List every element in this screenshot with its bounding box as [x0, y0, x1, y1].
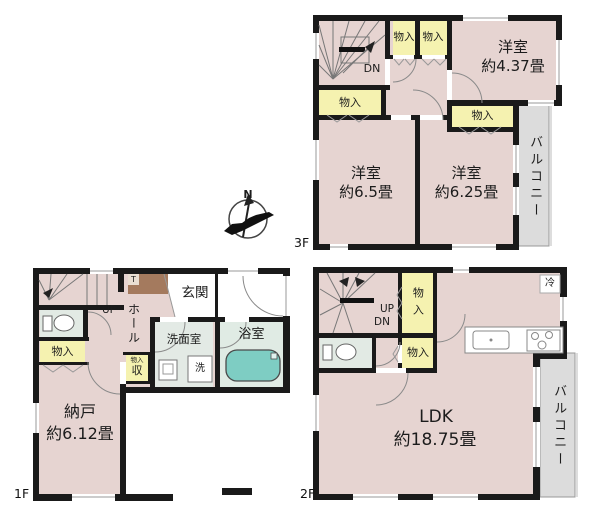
floor-1f-drawing	[33, 268, 290, 501]
entrance-label: 玄関	[171, 284, 219, 302]
balcony-label-2f: バルコニー	[544, 361, 572, 491]
closet-left-label: 物入	[319, 94, 381, 112]
north-compass-icon: N	[222, 190, 276, 246]
bathroom-label: 浴室	[223, 327, 280, 343]
bedroom-right-label: 洋室 約6.25畳	[418, 159, 515, 207]
stairs-down-label-3f: DN	[357, 61, 387, 77]
bedroom-right-name: 洋室	[451, 164, 481, 183]
closet-inner-label: 物入	[452, 107, 513, 125]
floor-2f-drawing	[313, 267, 578, 500]
bedroom-left-name: 洋室	[351, 164, 381, 183]
bedroom-left-size: 約6.5畳	[339, 183, 393, 202]
storage-tag-label: 物入	[126, 356, 148, 364]
site-wall-stub	[222, 488, 252, 495]
washer-label: 洗	[188, 362, 212, 376]
bedroom-small-name: 洋室	[498, 38, 528, 57]
floor-plan-1f: UP T 玄関 ホール 物入 洗面室 浴室 洗 物入 収 納戸 約6.12畳	[33, 268, 290, 501]
storeroom-name: 納戸	[42, 402, 118, 422]
stairs-down-label-2f: DN	[368, 316, 396, 329]
floor-tag-3f: 3F	[294, 235, 309, 250]
closet-upper-label-2f: 物入	[404, 279, 431, 329]
compass-north-label: N	[240, 188, 256, 202]
closet-lower-label-2f: 物入	[400, 345, 436, 361]
bedroom-right-size: 約6.25畳	[435, 183, 498, 202]
bedroom-small-size: 約4.37畳	[481, 57, 544, 76]
bedroom-small-label: 洋室 約4.37畳	[463, 33, 563, 81]
floor-tag-1f: 1F	[14, 486, 29, 501]
floor-plan-canvas: DN 物入 物入 物入 物入 洋室 約4.37畳 洋室 約6.5畳 洋室 約6.…	[0, 0, 600, 522]
ldk-name: LDK	[396, 407, 476, 429]
balcony-label-3f: バルコニー	[520, 111, 548, 243]
bedroom-left-label: 洋室 約6.5畳	[317, 159, 415, 207]
floor-plan-2f: UP DN 物入 物入 冷 LDK 約18.75畳 バルコニー	[313, 267, 578, 500]
stairs-up-label-2f: UP	[373, 303, 401, 316]
storeroom-size: 約6.12畳	[34, 424, 126, 444]
closet-top-left-label: 物入	[390, 29, 418, 47]
hall-label: ホール	[125, 296, 141, 352]
washroom-label: 洗面室	[155, 331, 213, 347]
closet-label-1f: 物入	[40, 344, 85, 359]
stairs-up-label-1f: UP	[95, 304, 123, 317]
fridge-label: 冷	[540, 277, 560, 291]
closet-top-right-label: 物入	[418, 29, 448, 47]
floor-plan-3f: DN 物入 物入 物入 物入 洋室 約4.37畳 洋室 約6.5畳 洋室 約6.…	[313, 15, 567, 252]
floor-tag-2f: 2F	[300, 486, 315, 501]
shoe-cabinet-label: T	[128, 274, 139, 285]
ldk-size: 約18.75畳	[375, 430, 495, 452]
storage-label: 収	[126, 364, 148, 378]
